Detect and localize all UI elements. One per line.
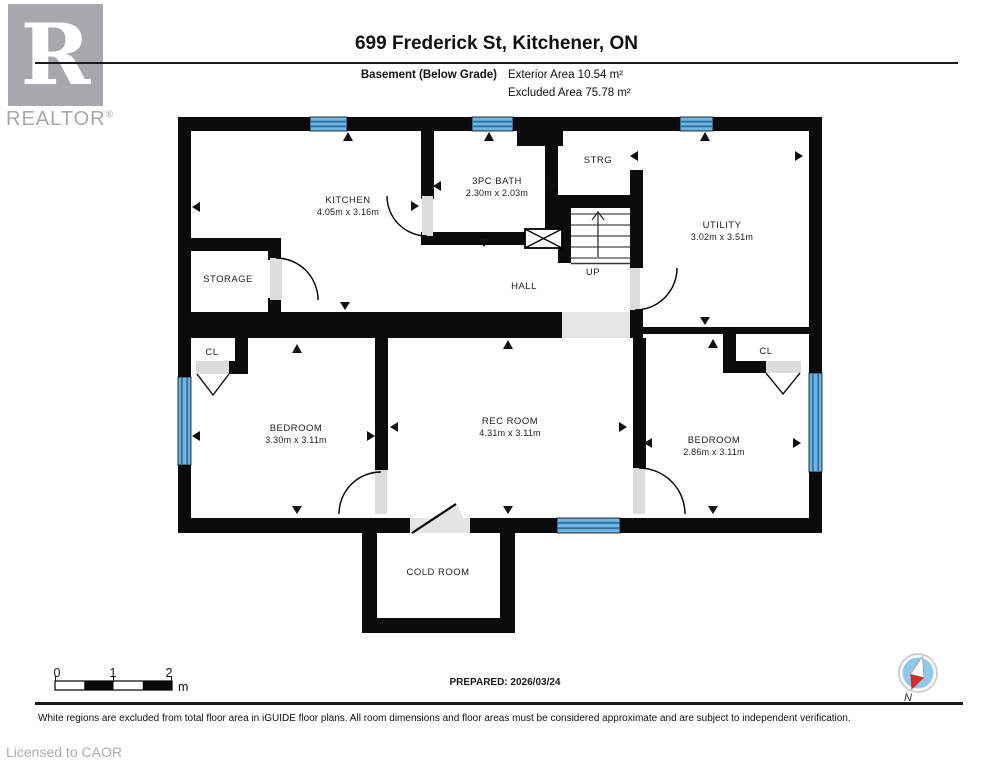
scale-tick-0: 0 xyxy=(54,666,61,680)
label-hall: HALL xyxy=(511,281,537,292)
label-utility: UTILITY xyxy=(703,220,742,231)
prepared-date: PREPARED: 2026/03/24 xyxy=(390,677,620,688)
dims-bath: 2.30m x 2.03m xyxy=(466,188,528,198)
label-bedroom-left: BEDROOM xyxy=(270,423,323,434)
bath-door-leaf xyxy=(422,196,433,236)
doors xyxy=(196,196,801,533)
footer-rule xyxy=(35,702,963,705)
floorplan-drawing: KITCHEN 4.05m x 3.16m 3PC BATH 2.30m x 2… xyxy=(0,0,993,768)
licensed-to-text: Licensed to CAOR xyxy=(6,744,122,760)
room-labels: KITCHEN 4.05m x 3.16m 3PC BATH 2.30m x 2… xyxy=(203,155,772,578)
bedroom-left-door-leaf xyxy=(375,470,387,514)
bedroom-left-door-arc xyxy=(339,472,381,514)
bedroom-right-door-leaf xyxy=(633,468,645,514)
closet-right-bifold-door xyxy=(766,373,800,394)
storage-door-arc xyxy=(276,258,318,300)
dims-bedroom-left: 3.30m x 3.11m xyxy=(265,435,326,445)
closet-left-shelf xyxy=(196,361,229,374)
label-rec-room: REC ROOM xyxy=(482,416,538,427)
utility-door-arc xyxy=(635,268,677,310)
closet-right-shelf xyxy=(766,361,801,373)
dims-kitchen: 4.05m x 3.16m xyxy=(317,207,379,217)
label-closet-left: CL xyxy=(205,347,218,358)
storage-door-leaf xyxy=(270,258,282,300)
bath-door-arc xyxy=(387,196,427,236)
label-bath: 3PC BATH xyxy=(472,176,522,187)
dims-bedroom-right: 2.86m x 3.11m xyxy=(683,447,744,457)
header-rule xyxy=(35,62,958,64)
floorplan-page: R REALTOR® 699 Frederick St, Kitchener, … xyxy=(0,0,993,768)
label-storage: STORAGE xyxy=(203,274,253,285)
utility-door-leaf xyxy=(630,268,640,310)
bedroom-right-door-arc xyxy=(639,468,685,514)
scale-unit: m xyxy=(178,680,188,694)
label-closet-right: CL xyxy=(759,346,772,357)
disclaimer-text: White regions are excluded from total fl… xyxy=(38,713,968,724)
label-up: UP xyxy=(586,267,600,278)
label-strg: STRG xyxy=(584,155,612,166)
closet-left-bifold-door xyxy=(197,374,229,395)
label-bedroom-right: BEDROOM xyxy=(688,435,741,446)
dims-rec-room: 4.31m x 3.11m xyxy=(479,428,540,438)
scale-bar: 0 1 2 m xyxy=(54,666,189,694)
label-kitchen: KITCHEN xyxy=(325,195,370,206)
dims-utility: 3.02m x 3.51m xyxy=(691,232,753,242)
stairs xyxy=(525,212,630,264)
label-cold-room: COLD ROOM xyxy=(406,567,469,578)
compass: N xyxy=(899,654,937,704)
